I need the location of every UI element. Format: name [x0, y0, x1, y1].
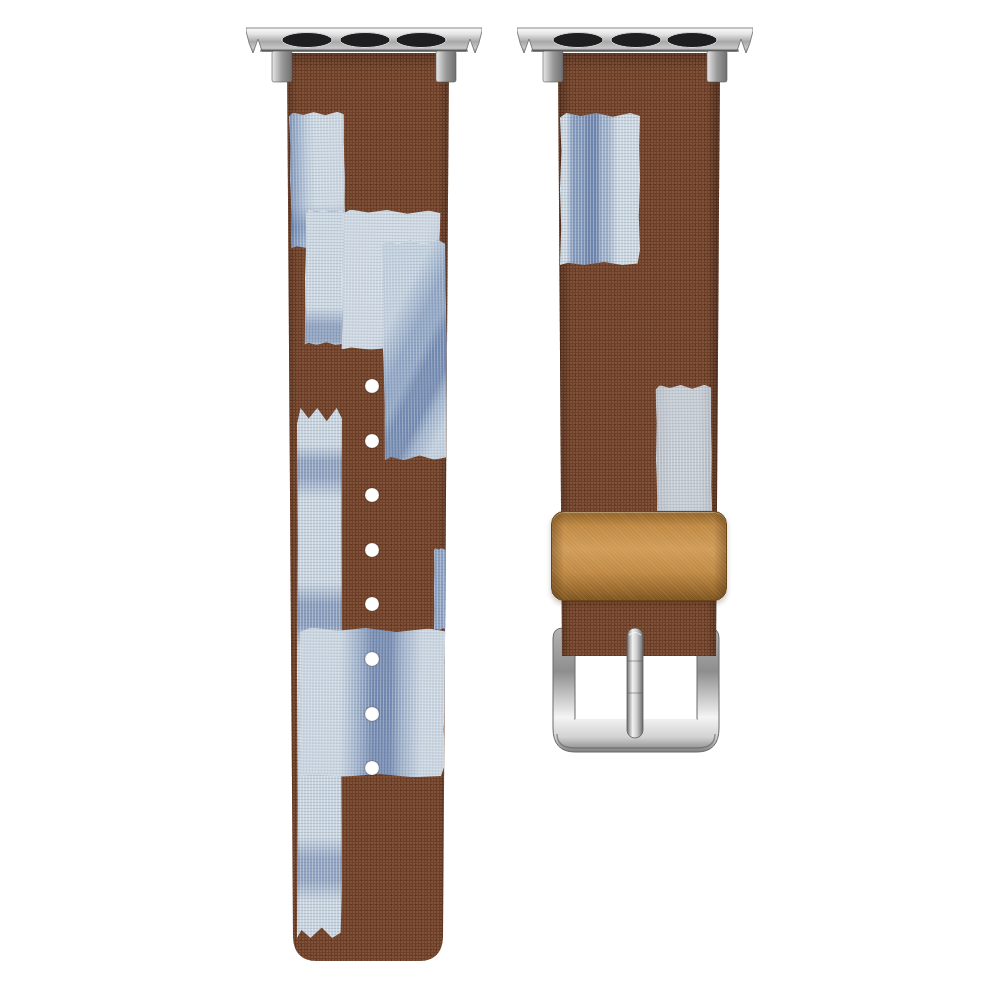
watch-lug-adapter-left [246, 27, 482, 83]
patch-upper-streaked [560, 113, 640, 265]
adapter-slot [553, 33, 603, 48]
patch-right-sliver [434, 548, 451, 630]
adjustment-hole [365, 488, 379, 502]
adjustment-hole [365, 434, 379, 448]
adapter-post-right [436, 51, 456, 82]
adapter-post-left [272, 51, 292, 82]
adapter-slot [282, 33, 332, 48]
patch-big-middle [298, 627, 446, 777]
adapter-slot [611, 33, 661, 48]
patch-right-streaked [381, 240, 448, 461]
patch-left-column-top [304, 210, 345, 345]
adjustment-hole [365, 652, 379, 666]
adapter-slot [667, 33, 717, 48]
buckle-prong [625, 627, 645, 739]
adapter-slot [340, 33, 390, 48]
adjustment-hole [365, 379, 379, 393]
adjustment-hole [365, 543, 379, 557]
keeper-loop [551, 511, 727, 601]
adapter-post-right [707, 51, 727, 82]
left-strap-fabric [284, 53, 452, 964]
adjustment-hole [365, 707, 379, 721]
adjustment-hole [365, 597, 379, 611]
adapter-slot [396, 33, 446, 48]
adapter-post-left [543, 51, 563, 82]
product-photo-stage [0, 0, 1000, 1000]
watch-lug-adapter-right [517, 27, 753, 83]
